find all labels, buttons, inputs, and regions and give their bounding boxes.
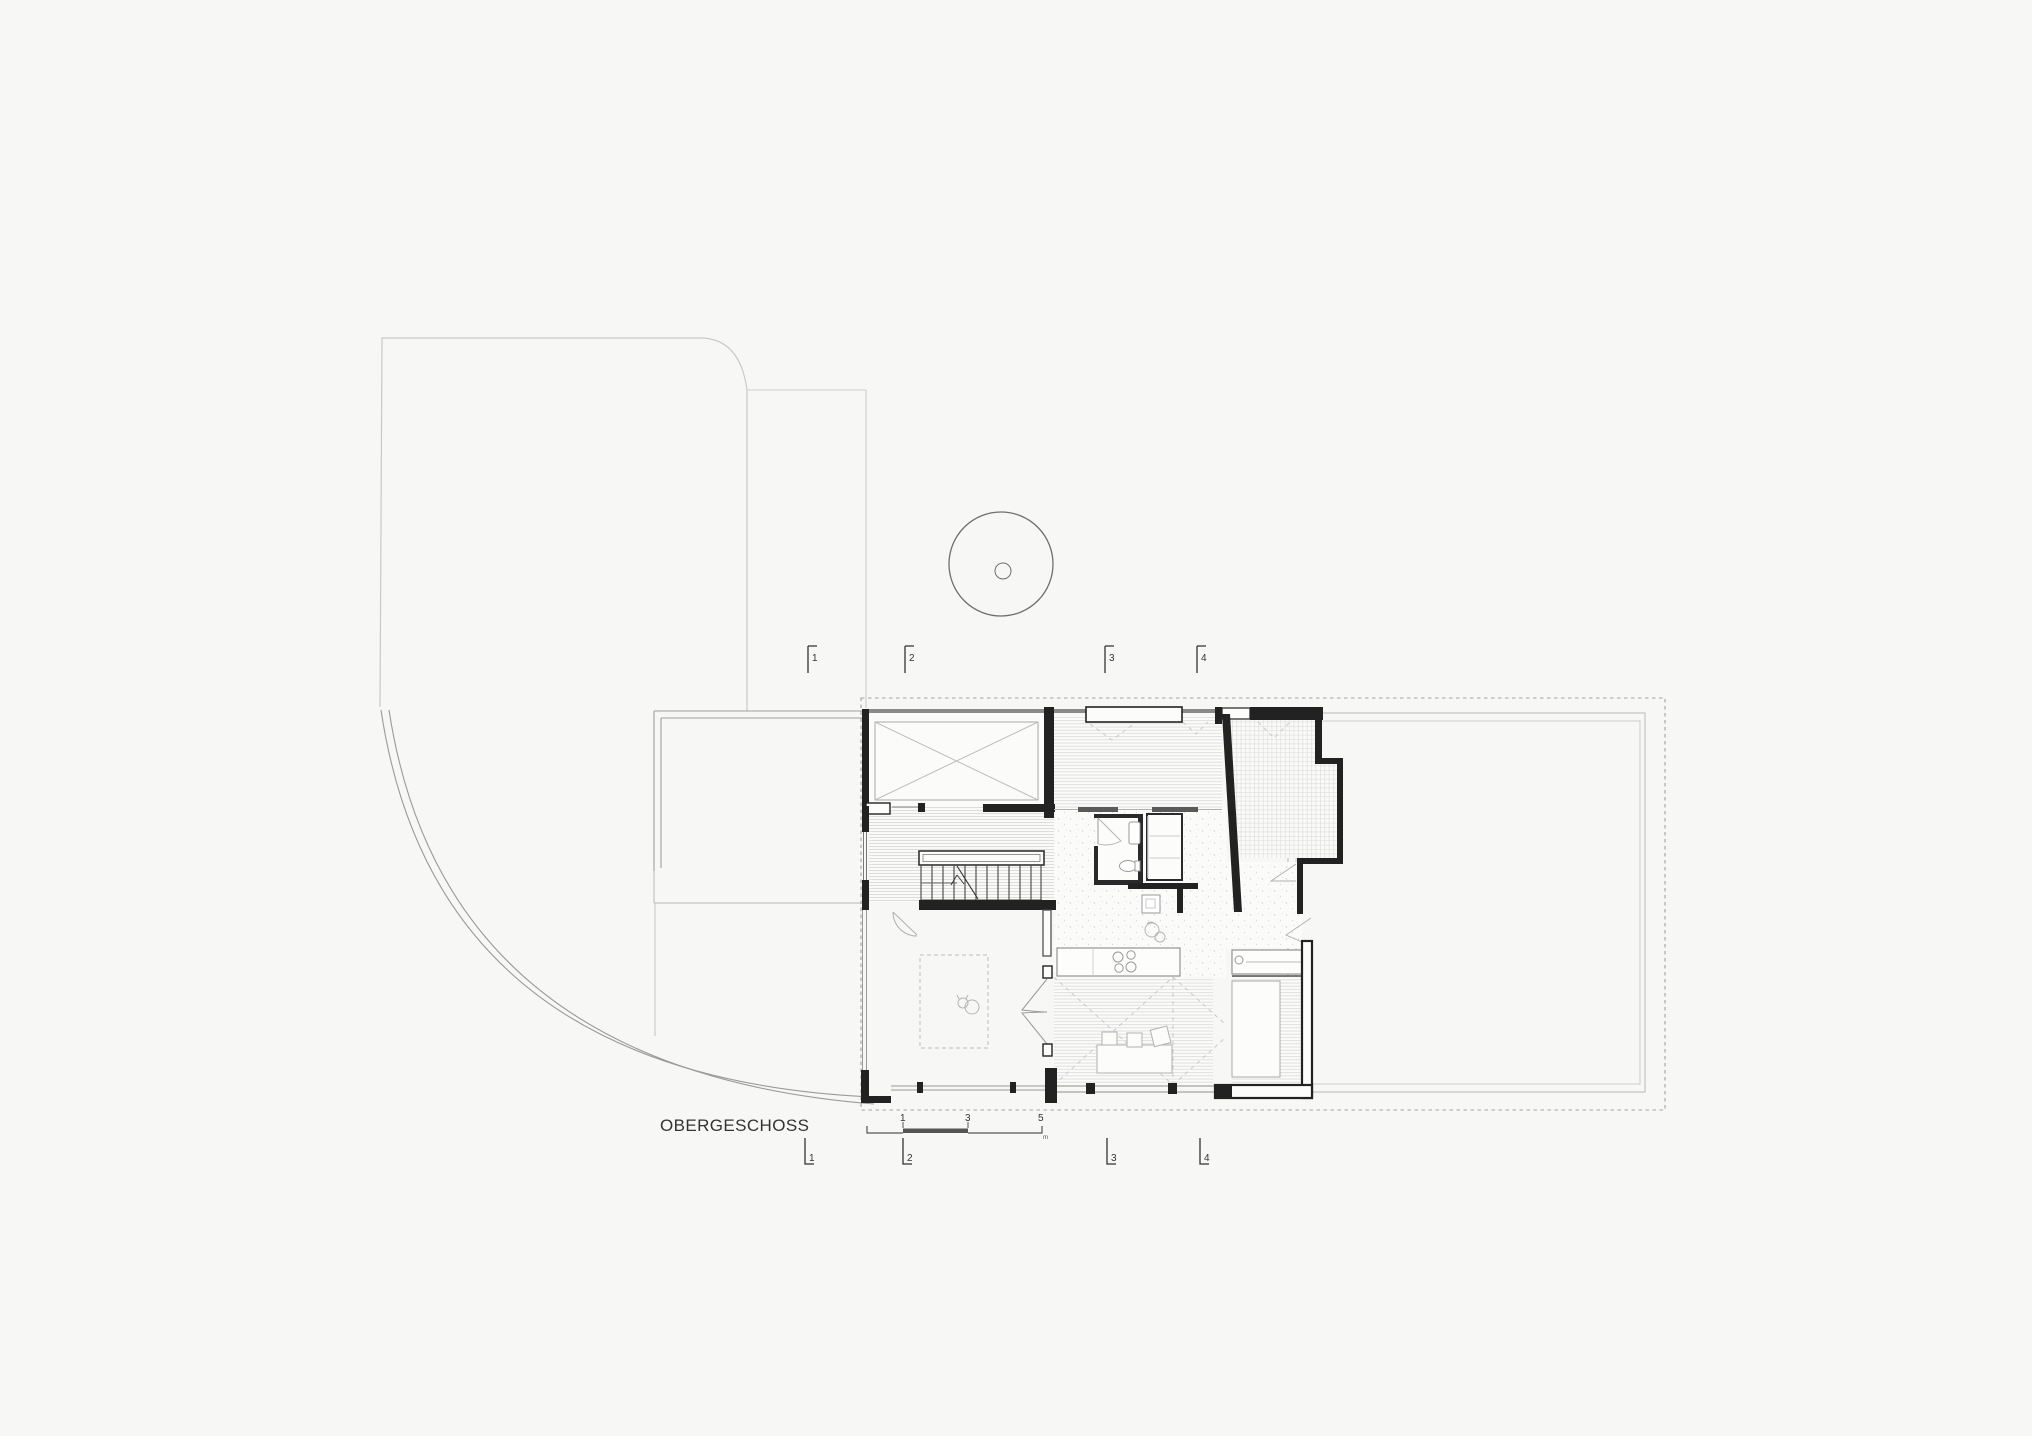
wc-room <box>1094 814 1143 885</box>
bathroom-north-wall <box>1250 707 1323 720</box>
hall-south-wall <box>919 900 1056 910</box>
hall-door-swing <box>893 912 917 936</box>
scale-tick-3: 3 <box>965 1113 971 1124</box>
section-marker-bottom-3: 3 <box>1111 1153 1117 1164</box>
north-window-1 <box>1086 707 1182 722</box>
section-marker-top-2: 2 <box>909 653 915 664</box>
building <box>861 707 1343 1103</box>
living-west-wall <box>1022 910 1057 1103</box>
void-south-window <box>866 803 890 814</box>
bedroom-south-wall-cap <box>1215 1085 1232 1098</box>
property-boundary-line <box>380 338 747 711</box>
section-marker-bottom-2: 2 <box>907 1153 913 1164</box>
scale-unit: m <box>1043 1135 1048 1141</box>
section-markers-bottom <box>805 1138 1209 1164</box>
bedroom-north-floor-hatch <box>1054 715 1222 808</box>
void-south-post <box>918 803 925 812</box>
void-room-floor <box>869 713 1044 806</box>
neighbour-building <box>654 711 863 1036</box>
washbasin <box>1129 822 1140 844</box>
french-doors <box>1022 979 1047 1044</box>
cat-sketch <box>957 995 979 1014</box>
void-south-wall <box>983 804 1055 812</box>
scale-tick-5: 5 <box>1038 1113 1044 1124</box>
section-marker-bottom-4: 4 <box>1204 1153 1210 1164</box>
floor-plan-drawing: 1 2 3 4 1 2 3 4 1 3 5 m OBERGESCHOSS <box>0 0 2032 1436</box>
section-marker-top-4: 4 <box>1201 653 1207 664</box>
road-inner-line <box>389 710 874 1104</box>
parcel-line <box>747 390 866 708</box>
wardrobe <box>1147 814 1182 880</box>
void-bedroom-divider-wall <box>1044 707 1054 818</box>
desk <box>1232 950 1302 974</box>
drawing-title: OBERGESCHOSS <box>660 1116 809 1135</box>
hall-west-wall <box>862 806 869 910</box>
bed <box>1232 981 1280 1077</box>
section-markers-top <box>808 646 1206 673</box>
west-wall-upper <box>862 709 869 806</box>
east-wall <box>1302 941 1312 1098</box>
section-marker-bottom-1: 1 <box>809 1153 815 1164</box>
tree-icon <box>949 512 1053 616</box>
floor-plan-sheet: 1 2 3 4 1 2 3 4 1 3 5 m OBERGESCHOSS <box>0 0 2032 1436</box>
terrace-pergola-dashed <box>920 955 988 1048</box>
terrace-post-1 <box>917 1082 923 1093</box>
terrace <box>861 910 1047 1103</box>
living-sw-corner-wall <box>1045 1068 1057 1103</box>
north-wall-post <box>1215 707 1222 724</box>
sofa <box>1097 1026 1172 1073</box>
vanity-sink <box>1142 895 1160 913</box>
scale-tick-1: 1 <box>900 1113 906 1124</box>
section-marker-top-1: 1 <box>812 653 818 664</box>
east-wing-roof-inner <box>1296 721 1640 1084</box>
toilet <box>1120 861 1141 872</box>
terrace-corner-wall-h <box>861 1096 891 1103</box>
kitchen-island <box>1057 948 1180 976</box>
section-marker-top-3: 3 <box>1109 653 1115 664</box>
scale-bar: 1 3 5 m <box>867 1113 1048 1141</box>
terrace-post-2 <box>1010 1082 1016 1093</box>
